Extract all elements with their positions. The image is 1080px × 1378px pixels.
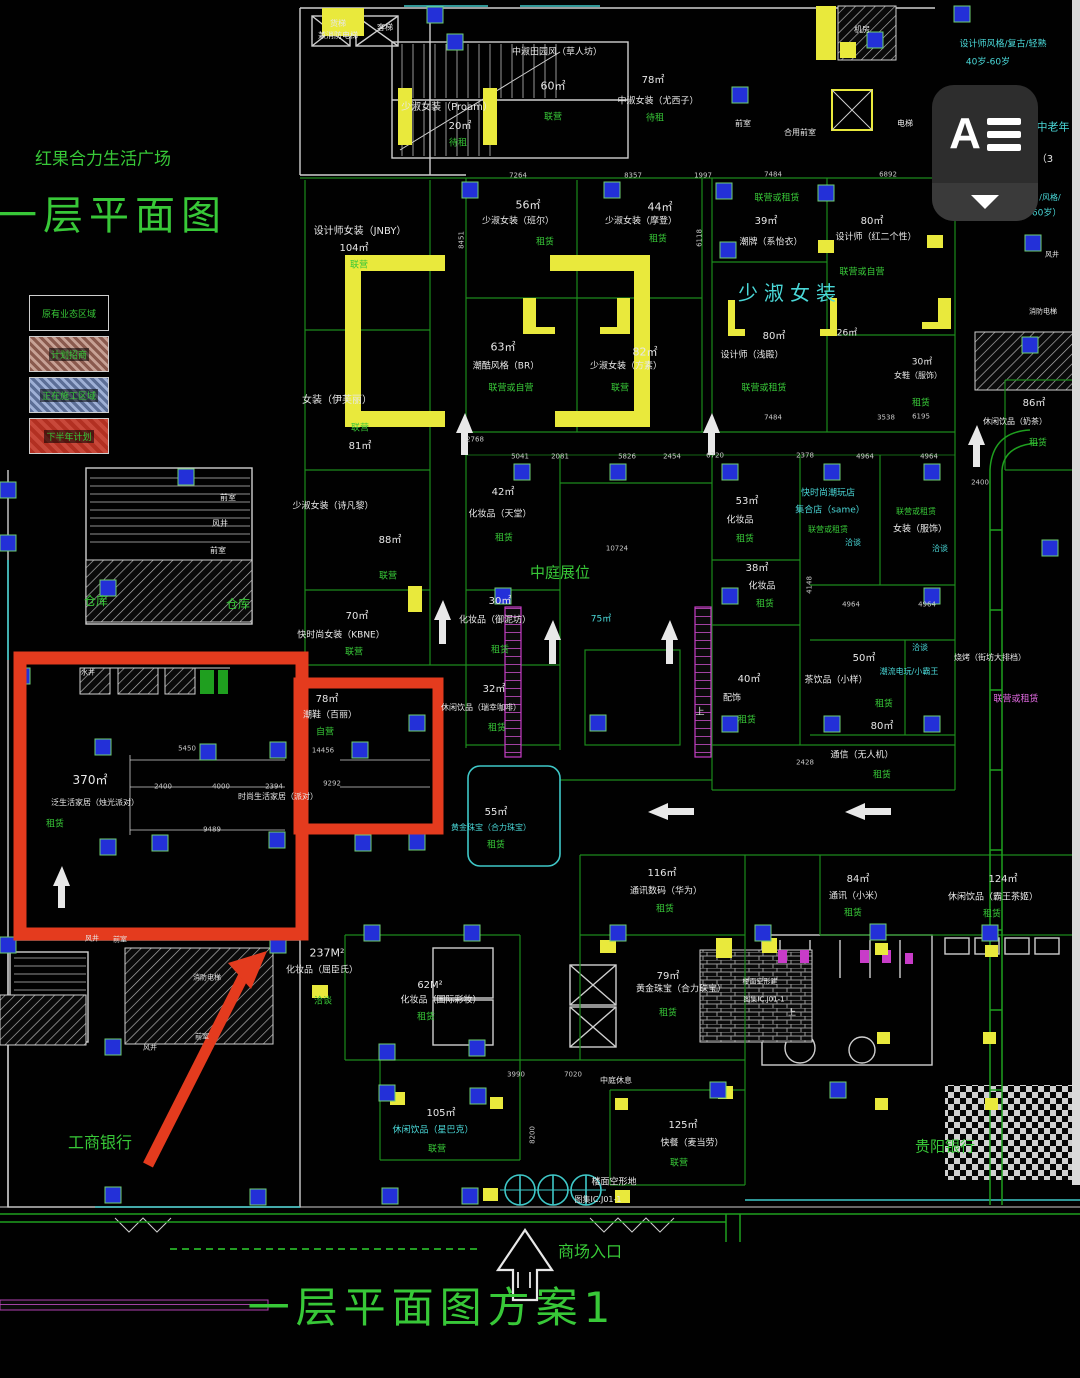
stair-treads (14, 44, 740, 1040)
wall-highlight-block (877, 1032, 890, 1044)
direction-arrows (53, 413, 985, 1300)
column-marker (352, 742, 368, 758)
column-marker (469, 1040, 485, 1056)
column-marker (200, 744, 216, 760)
wall-highlight-block (830, 298, 837, 334)
letter-a-glyph: A (949, 112, 981, 156)
column-marker (382, 1188, 398, 1204)
column-marker (1042, 540, 1058, 556)
column-marker (924, 464, 940, 480)
column-marker (409, 715, 425, 731)
column-marker (755, 925, 771, 941)
legend-item-construction: 正在施工区域 (29, 377, 109, 413)
legend-item-planned: 计划招商 (29, 336, 109, 372)
column-marker (100, 580, 116, 596)
wall-highlight-block (818, 240, 834, 253)
wall-highlight-block (600, 940, 616, 953)
wall-highlight-block (927, 235, 943, 248)
wall-highlight-block (985, 945, 998, 957)
column-marker (105, 1187, 121, 1203)
column-marker (870, 924, 886, 940)
column-marker (495, 588, 511, 604)
column-marker (818, 185, 834, 201)
column-marker (867, 32, 883, 48)
wall-highlight-block (600, 327, 630, 334)
cad-viewer-screen: 红果合力生活广场一层平面图一层平面图方案1商场入口工商银行贵阳银行中庭展位75㎡… (0, 0, 1080, 1378)
legend-label: 原有业态区域 (40, 307, 98, 320)
wall-highlight-block (555, 411, 650, 427)
column-marker (604, 182, 620, 198)
chevron-down-icon (971, 195, 999, 209)
legend-label: 下半年计划 (44, 430, 93, 443)
hatched-regions (0, 6, 1075, 1180)
column-marker (152, 835, 168, 851)
column-marker (1022, 337, 1038, 353)
wall-highlight-block (820, 329, 837, 336)
wall-lines (0, 8, 1080, 1288)
wall-highlight-block (483, 88, 497, 145)
column-marker (355, 835, 371, 851)
wall-highlight-block (523, 327, 555, 334)
column-marker (379, 1044, 395, 1060)
wall-highlight-block (716, 938, 732, 958)
entrance-arrow (498, 1230, 552, 1300)
column-marker (464, 925, 480, 941)
wall-highlight-block (312, 985, 328, 998)
wall-highlight-block (408, 586, 422, 612)
wall-highlight-block (345, 411, 445, 427)
column-marker (105, 1039, 121, 1055)
column-marker (954, 6, 970, 22)
wall-highlight-block (985, 1098, 998, 1110)
floor-plan-canvas (0, 0, 1080, 1378)
column-marker (610, 464, 626, 480)
column-marker (610, 925, 626, 941)
legend-label: 正在施工区域 (40, 389, 98, 402)
wall-highlight-block (728, 329, 745, 336)
text-style-lines-icon: A (949, 85, 1021, 183)
column-marker (364, 925, 380, 941)
column-marker (924, 716, 940, 732)
wall-highlight-block (922, 322, 951, 329)
column-marker (722, 464, 738, 480)
wall-highlight-block (615, 1098, 628, 1110)
wall-highlight-block (875, 943, 888, 955)
column-marker (0, 535, 16, 551)
column-marker (1025, 235, 1041, 251)
wall-highlight-block (398, 88, 412, 145)
wall-highlight-block (816, 6, 836, 60)
wall-highlight-blocks (312, 6, 998, 1203)
column-marker (982, 925, 998, 941)
column-marker (722, 588, 738, 604)
column-marker (710, 1082, 726, 1098)
column-marker (462, 182, 478, 198)
column-marker (100, 839, 116, 855)
column-marker (379, 1085, 395, 1101)
column-marker (470, 1088, 486, 1104)
legend: 原有业态区域 计划招商 正在施工区域 下半年计划 (29, 295, 107, 459)
column-marker (427, 7, 443, 23)
wall-highlight-block (875, 1098, 888, 1110)
column-marker (269, 832, 285, 848)
column-marker (0, 482, 16, 498)
column-marker (409, 834, 425, 850)
column-marker (732, 87, 748, 103)
column-marker (824, 716, 840, 732)
column-marker (722, 716, 738, 732)
column-marker (250, 1189, 266, 1205)
column-marker (514, 464, 530, 480)
elevator-top-right (832, 90, 872, 130)
column-marker (716, 183, 732, 199)
column-marker (830, 1082, 846, 1098)
column-marker (824, 464, 840, 480)
wall-highlight-block (483, 1188, 498, 1201)
text-style-button[interactable]: A (932, 85, 1038, 221)
wall-highlight-block (840, 42, 856, 58)
wall-highlight-block (322, 8, 364, 36)
red-annotations (20, 658, 438, 1165)
legend-item-existing: 原有业态区域 (29, 295, 109, 331)
column-marker (924, 588, 940, 604)
wall-highlight-block (490, 1097, 503, 1109)
column-marker (720, 242, 736, 258)
column-marker (270, 742, 286, 758)
column-marker (462, 1188, 478, 1204)
wall-highlight-block (983, 1032, 996, 1044)
column-marker (178, 469, 194, 485)
wall-highlight-block (615, 1190, 630, 1203)
column-marker (95, 739, 111, 755)
screen-edge-strip (1072, 0, 1080, 1185)
column-marker (447, 34, 463, 50)
wall-highlight-block (634, 255, 650, 427)
wall-highlight-block (345, 255, 361, 427)
expand-button-area[interactable] (932, 183, 1038, 221)
legend-item-second-half: 下半年计划 (29, 418, 109, 454)
column-marker (590, 715, 606, 731)
legend-label: 计划招商 (49, 348, 89, 361)
